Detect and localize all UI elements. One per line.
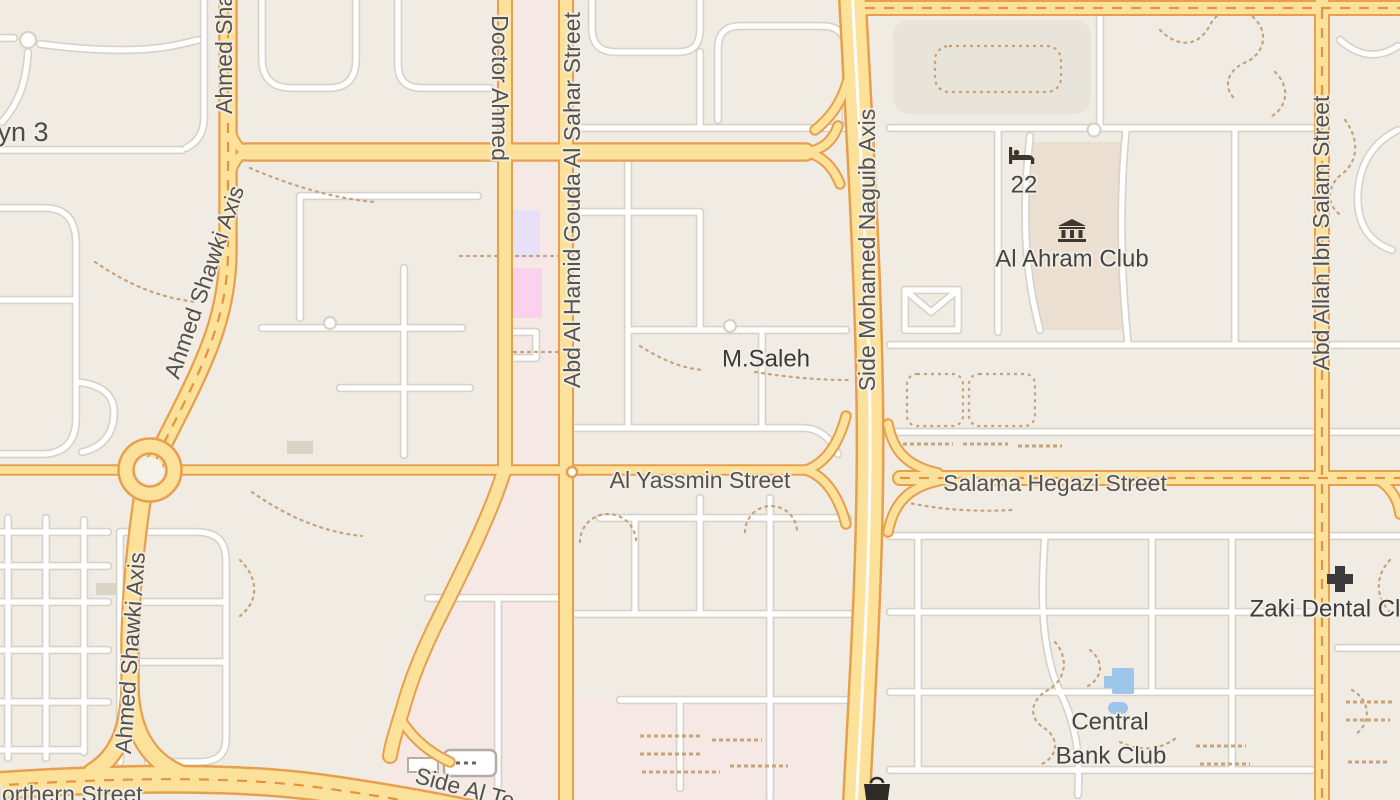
place-label-m-saleh: M.Saleh <box>722 346 810 371</box>
street-label-abd-allah-ibn-salam: Abd Allah Ibn Salam Street <box>1309 96 1333 371</box>
district-label: yn 3 <box>0 118 49 146</box>
place-label-central-bank-club-line1: Central <box>1071 709 1148 734</box>
place-label-al-ahram-club: Al Ahram Club <box>995 246 1148 271</box>
street-label-side-mohamed-naguib: Side Mohamed Naguib Axis <box>855 109 879 392</box>
street-label-salama-hegazi: Salama Hegazi Street <box>943 471 1167 495</box>
map-viewport[interactable]: yn 3 Ahmed Shawki Axis Ahmed Shawki Axis… <box>0 0 1400 800</box>
street-label-abd-al-hamid-gouda: Abd Al Hamid Gouda Al Sahar Street <box>560 12 584 388</box>
street-label-doctor-ahmed: Doctor Ahmed <box>488 15 512 161</box>
place-label-zaki-dental: Zaki Dental Cl <box>1250 596 1400 621</box>
map-canvas <box>0 0 1400 800</box>
street-label-ahmed-shawki-top: Ahmed Shawki Axis <box>212 0 236 114</box>
hotel-number-label: 22 <box>1011 172 1038 197</box>
street-label-al-yassmin: Al Yassmin Street <box>610 468 791 492</box>
street-label-northern: Northern Street <box>0 782 143 800</box>
place-label-central-bank-club-line2: Bank Club <box>1056 743 1167 768</box>
